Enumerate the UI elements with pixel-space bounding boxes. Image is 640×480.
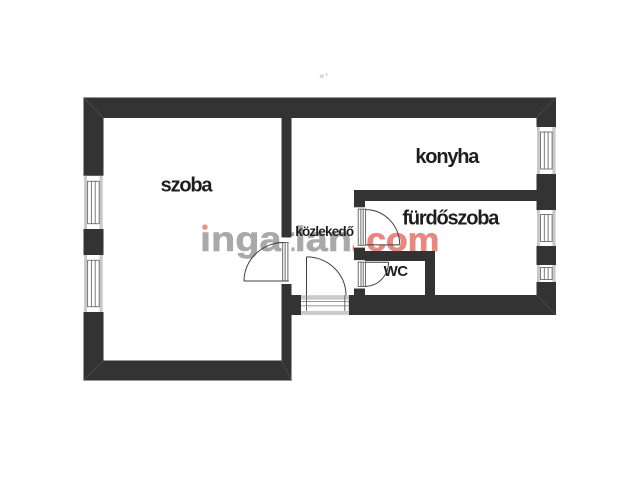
svg-text:szoba: szoba <box>161 175 214 197</box>
svg-text:WC: WC <box>384 263 409 280</box>
svg-text:közlekedő: közlekedő <box>295 224 354 239</box>
svg-text:konyha: konyha <box>415 146 480 168</box>
svg-text:fürdőszoba: fürdőszoba <box>402 208 500 230</box>
